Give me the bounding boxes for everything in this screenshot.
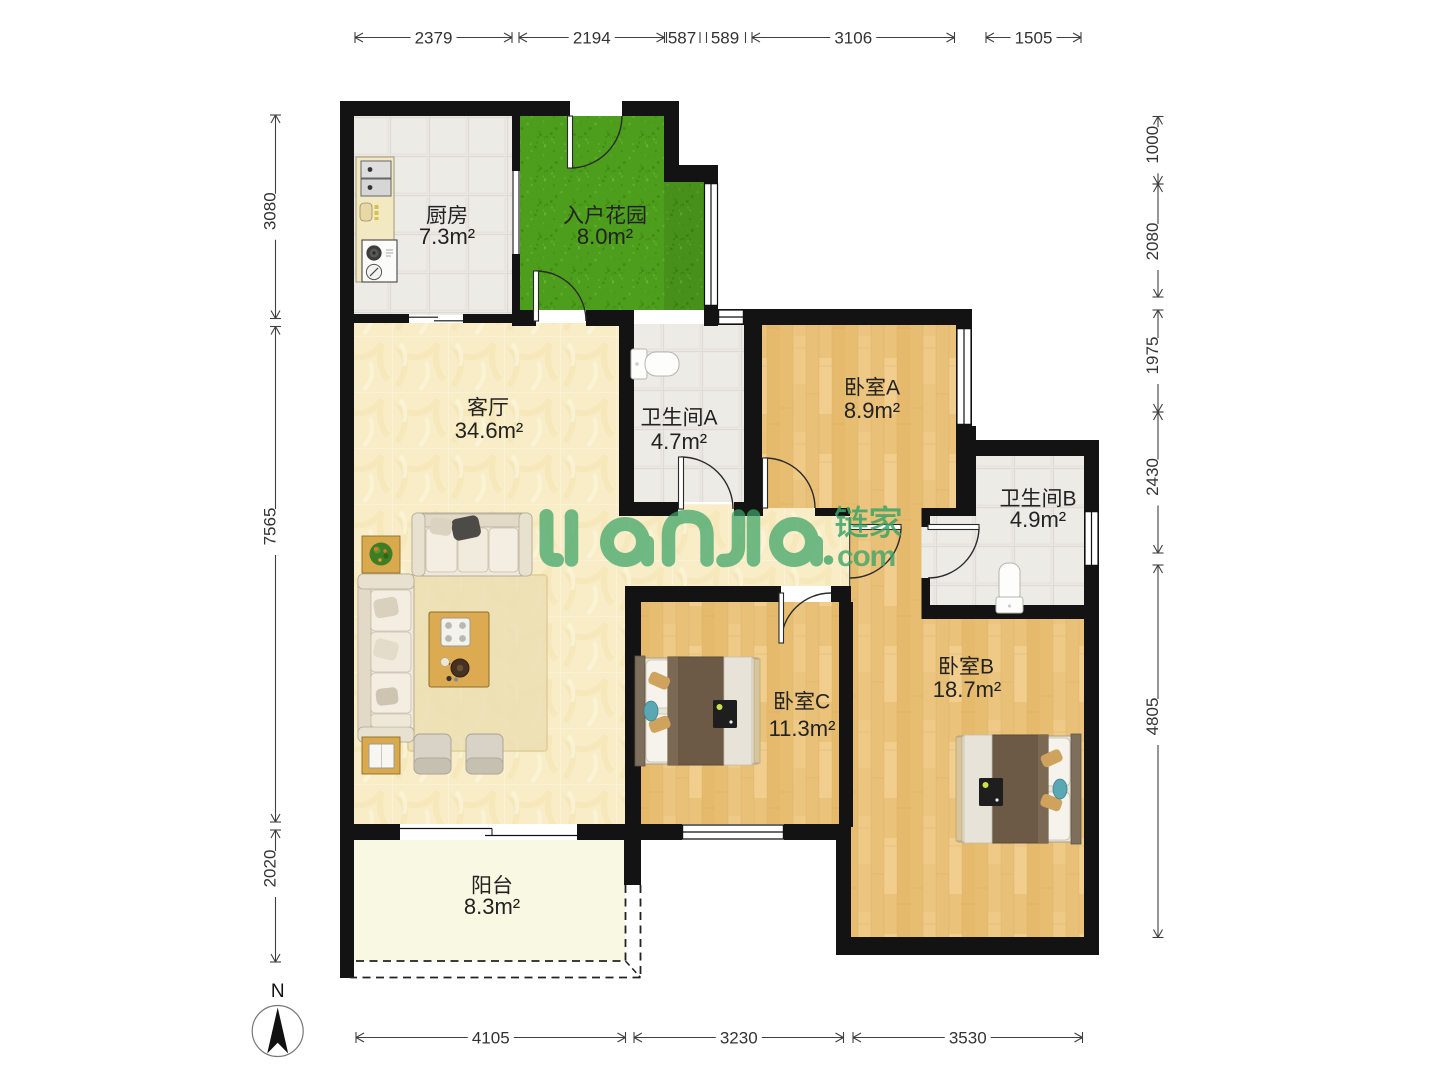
svg-text:3106: 3106 [834, 29, 872, 48]
svg-text:4805: 4805 [1143, 698, 1162, 736]
svg-text:2379: 2379 [415, 29, 453, 48]
svg-text:8.3m²: 8.3m² [464, 894, 520, 919]
svg-text:4.7m²: 4.7m² [651, 429, 707, 454]
svg-text:3230: 3230 [720, 1029, 758, 1048]
svg-text:1505: 1505 [1015, 29, 1053, 48]
svg-text:34.6m²: 34.6m² [455, 418, 523, 443]
svg-text:8.0m²: 8.0m² [577, 224, 633, 249]
svg-text:com: com [837, 540, 895, 573]
svg-text:2430: 2430 [1143, 458, 1162, 496]
svg-text:3080: 3080 [261, 192, 280, 230]
svg-text:8.9m²: 8.9m² [844, 398, 900, 423]
svg-text:C: C [815, 691, 830, 714]
svg-text:587: 587 [668, 29, 696, 48]
svg-text:7565: 7565 [261, 508, 280, 546]
svg-text:2080: 2080 [1143, 223, 1162, 261]
svg-text:N: N [271, 981, 285, 1002]
svg-text:1000: 1000 [1143, 126, 1162, 164]
svg-text:589: 589 [711, 29, 739, 48]
svg-text:2020: 2020 [261, 850, 280, 888]
svg-text:4105: 4105 [472, 1029, 510, 1048]
svg-text:B: B [980, 656, 994, 679]
svg-text:4.9m²: 4.9m² [1010, 507, 1066, 532]
svg-text:18.7m²: 18.7m² [933, 677, 1001, 702]
svg-text:1975: 1975 [1143, 337, 1162, 375]
svg-text:A: A [703, 407, 717, 430]
svg-text:A: A [886, 377, 900, 400]
svg-text:7.3m²: 7.3m² [419, 224, 475, 249]
svg-text:11.3m²: 11.3m² [769, 716, 836, 741]
svg-text:3530: 3530 [949, 1029, 987, 1048]
svg-text:2194: 2194 [573, 29, 611, 48]
